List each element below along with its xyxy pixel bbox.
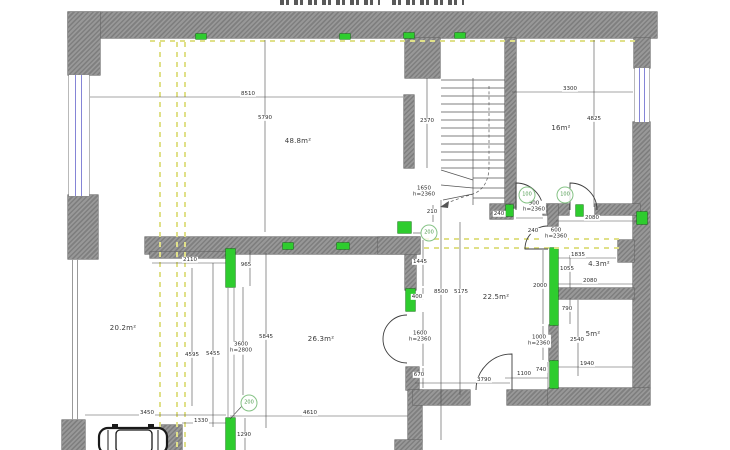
dimension-label: 3600h=2800 — [229, 342, 253, 355]
dimension-label: 740 — [535, 367, 548, 373]
dimension-label: 2540 — [569, 337, 585, 343]
dimension-label: 3300 — [562, 86, 578, 92]
room-area-label: 48.8m² — [285, 137, 311, 145]
room-area-label: 4.3m² — [588, 260, 610, 268]
dimension-label: 5790 — [257, 115, 273, 121]
dimension-label: 3450 — [139, 410, 155, 416]
dimension-label: 2110 — [182, 257, 198, 263]
dimension-label: 400 — [411, 294, 424, 300]
dimension-label: 1000h=2360 — [527, 335, 551, 348]
dimension-label: 240 — [527, 228, 540, 234]
dimension-label: 1290 — [236, 432, 252, 438]
dimension-label: 4825 — [586, 116, 602, 122]
dimension-label: 1330 — [193, 418, 209, 424]
dimension-label: 1100 — [516, 371, 532, 377]
dimension-label: 1835 — [570, 252, 586, 258]
room-area-label: 26.3m² — [308, 335, 334, 343]
room-area-label: 16m² — [551, 124, 570, 132]
dimension-label: 1650h=2360 — [412, 186, 436, 199]
dimension-label: 965 — [240, 262, 253, 268]
dimension-label: 1445 — [412, 259, 428, 265]
dimension-label: 2370 — [419, 118, 435, 124]
wall-thickness-marker: 200 — [241, 395, 258, 412]
dimension-label: 5175 — [453, 289, 469, 295]
dimension-label: 670 — [413, 372, 426, 378]
wall-thickness-marker: 200 — [421, 225, 438, 242]
dimension-label: 8510 — [240, 91, 256, 97]
dimension-label: 5845 — [258, 334, 274, 340]
dimension-label: 240 — [493, 211, 506, 217]
dimension-label: 1055 — [559, 266, 575, 272]
dimension-label: 2000 — [532, 283, 548, 289]
dimension-label: 600h=2360 — [544, 228, 568, 241]
dimension-label: 4610 — [302, 410, 318, 416]
dimension-label: 4595 — [184, 352, 200, 358]
wall-thickness-marker: 100 — [519, 187, 536, 204]
dimension-label: 1940 — [579, 361, 595, 367]
wall-thickness-marker: 100 — [557, 187, 574, 204]
dimension-label: 790 — [561, 306, 574, 312]
dimension-label: 5455 — [205, 351, 221, 357]
dimension-label: 210 — [426, 209, 439, 215]
floor-plan: 48.8m²16m²20.2m²26.3m²22.5m²4.3m²5m²8510… — [0, 0, 730, 450]
dimension-label: 1600h=2360 — [408, 331, 432, 344]
room-area-label: 20.2m² — [110, 324, 136, 332]
dimension-label: 8500 — [433, 289, 449, 295]
room-area-label: 5m² — [586, 330, 601, 338]
labels-layer: 48.8m²16m²20.2m²26.3m²22.5m²4.3m²5m²8510… — [0, 0, 730, 450]
dimension-label: 2080 — [582, 278, 598, 284]
dimension-label: 3790 — [476, 377, 492, 383]
room-area-label: 22.5m² — [483, 293, 509, 301]
dimension-label: 2080 — [584, 215, 600, 221]
